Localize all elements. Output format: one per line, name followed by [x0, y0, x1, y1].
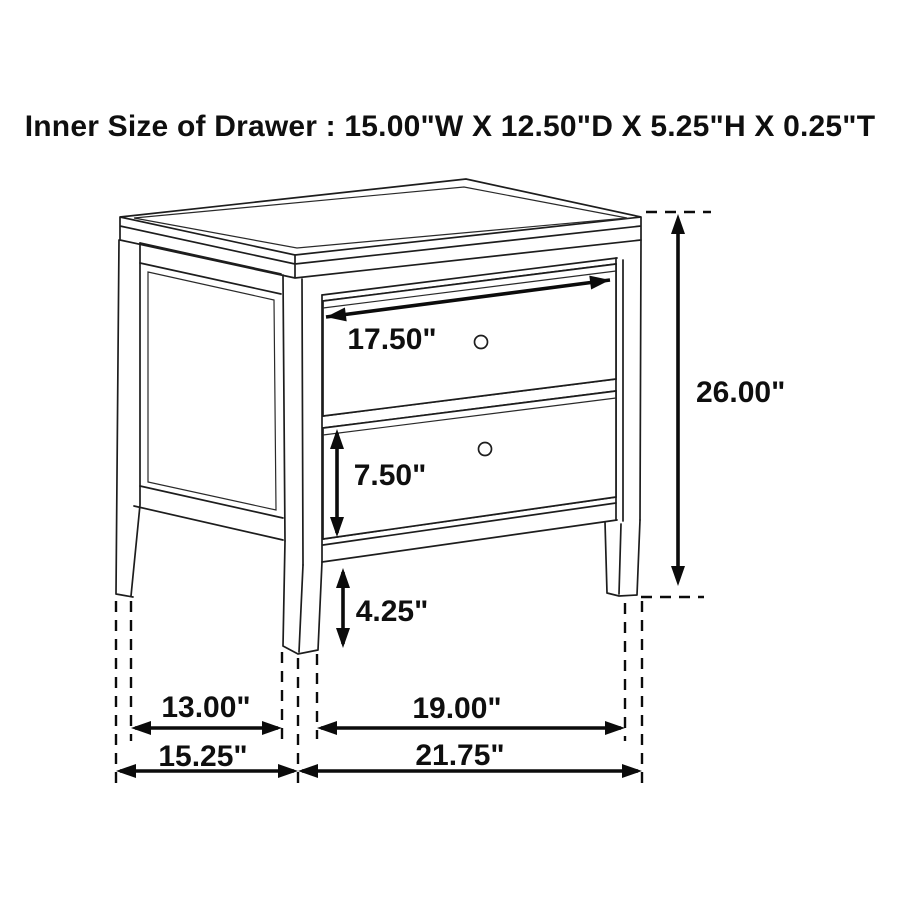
side-recessed-panel	[148, 272, 276, 510]
dim-label-side-span-inner: 13.00"	[161, 691, 250, 724]
dimension-leg-height: 4.25"	[336, 568, 428, 648]
tabletop	[120, 179, 641, 278]
nightstand-dimension-diagram: 17.50" 26.00" 7.50" 4.25" 13	[0, 0, 900, 900]
dim-label-overall-height: 26.00"	[696, 376, 785, 409]
nightstand-drawing	[116, 179, 641, 654]
bottom-drawer-knob[interactable]	[479, 443, 492, 456]
front-left-stile	[283, 275, 303, 565]
dim-label-leg-height: 4.25"	[356, 595, 429, 628]
dim-label-front-span-inner: 19.00"	[412, 692, 501, 725]
dimension-front-span-inner: 19.00"	[317, 692, 625, 735]
dim-label-overall-width: 21.75"	[415, 739, 504, 772]
dimension-overall-height: 26.00"	[671, 214, 785, 586]
dimension-diagram-page: Inner Size of Drawer : 15.00"W X 12.50"D…	[0, 0, 900, 900]
back-left-stile	[116, 240, 140, 597]
dimension-overall-depth: 15.25"	[116, 740, 298, 778]
dim-label-overall-depth: 15.25"	[158, 740, 247, 773]
left-side-panel	[116, 240, 303, 597]
dim-label-top-drawer-width: 17.50"	[347, 323, 436, 356]
front-right-stile	[616, 240, 641, 521]
top-drawer-knob[interactable]	[475, 336, 488, 349]
dimension-side-span-inner: 13.00"	[131, 691, 282, 735]
side-bottom-rail	[134, 486, 283, 540]
dim-label-bottom-drawer-height: 7.50"	[354, 459, 427, 492]
dimension-overall-width: 21.75"	[298, 739, 642, 778]
front-right-leg	[605, 520, 640, 596]
